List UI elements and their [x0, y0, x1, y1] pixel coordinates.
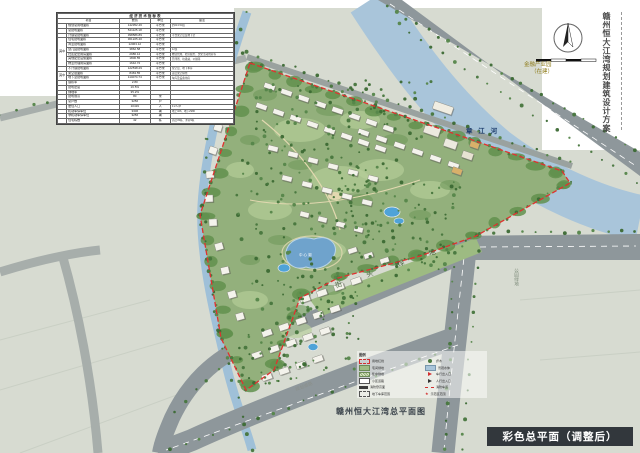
dashbox-swatch-icon	[359, 391, 370, 397]
financial-park-label-line1: 金融产业园	[524, 60, 552, 68]
legend-title: 图例	[359, 352, 485, 357]
green-swatch-icon	[359, 365, 370, 371]
title-divider-dotline	[621, 12, 622, 130]
road-swatch-icon	[359, 378, 370, 384]
legend-item: 地下车库范围	[359, 391, 419, 398]
lake-label: 中心湖	[299, 252, 313, 257]
river-label: 章 江 河	[466, 126, 499, 135]
plan-caption: 赣州恒大江湾总平面图	[336, 406, 426, 417]
sheet-name-banner: 彩色总平面（调整后）	[487, 427, 633, 446]
park-green-label: 公园绿地	[514, 268, 520, 286]
dashline-swatch-icon	[425, 387, 434, 388]
water-swatch-icon	[425, 365, 436, 371]
tree-swatch-icon	[428, 359, 432, 363]
table-row: 住宅栋数42栋高层33栋、洋房9栋	[58, 119, 234, 124]
arrow-swatch-icon	[428, 379, 432, 383]
box-swatch-icon	[359, 386, 368, 390]
indicator-table: 经济技术指标表 项目 数值 单位 备注 规划总用地面积142352.46平方米约…	[56, 12, 235, 125]
map-legend: 图例 用地红线宅间绿地集中绿地小区道路消防登高面地下车库范围 乔木景观水体车行出…	[357, 351, 487, 398]
sheet-vertical-title: 赣州恒大江湾规划建筑设计方案	[601, 12, 612, 152]
drawing-sheet: 章 江 河 金融产业园 （在建） 街 头 绿 地 公园绿地 中心湖 规划道路 经…	[0, 0, 640, 453]
hatch-swatch-icon	[359, 372, 370, 378]
reddash-swatch-icon	[359, 359, 370, 365]
arrowred-swatch-icon	[428, 372, 432, 376]
legend-item: ★示范区范围	[425, 391, 485, 398]
financial-park-label-line2: （在建）	[531, 67, 553, 75]
star-swatch-icon: ★	[425, 392, 429, 396]
north-arrow-icon	[554, 23, 582, 52]
